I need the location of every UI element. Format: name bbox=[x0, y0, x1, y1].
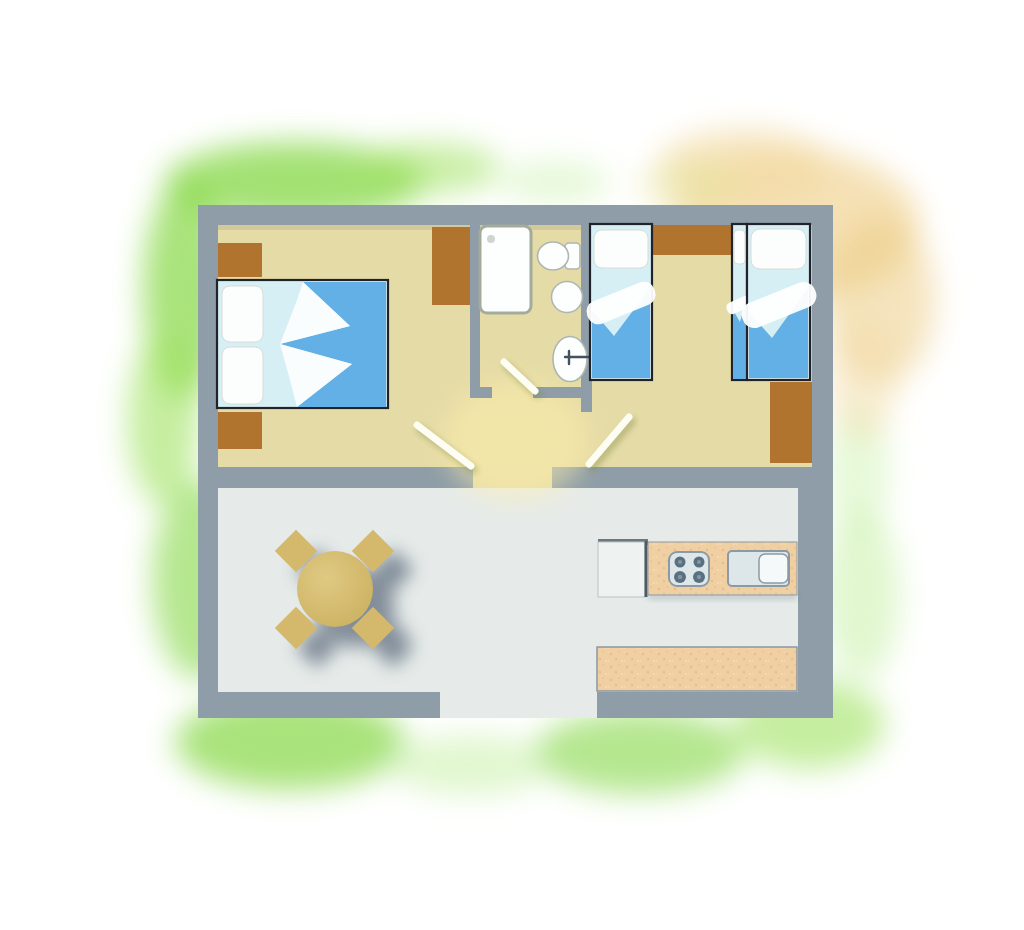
bidet bbox=[552, 282, 583, 313]
toilet bbox=[538, 242, 569, 270]
round-table bbox=[297, 551, 373, 627]
lower-counter bbox=[597, 647, 797, 691]
kitchen-sink bbox=[728, 551, 789, 586]
single-bed-left bbox=[583, 224, 659, 380]
cabinet-between-beds bbox=[652, 225, 733, 255]
pillow bbox=[751, 229, 806, 269]
nightstand-top bbox=[218, 243, 262, 277]
pillow bbox=[222, 286, 263, 342]
sink-basin bbox=[759, 554, 788, 583]
floor-plan-scene bbox=[0, 0, 1024, 930]
pillow bbox=[734, 230, 745, 264]
double-bed bbox=[217, 280, 388, 408]
wardrobe-kids bbox=[770, 382, 812, 463]
pillow bbox=[222, 347, 263, 404]
stove bbox=[669, 552, 709, 586]
wall-foot bbox=[470, 387, 492, 398]
wardrobe-bedroom bbox=[432, 227, 470, 305]
shower-drain-icon bbox=[487, 235, 495, 243]
wall-bathroom-hall bbox=[533, 387, 589, 398]
single-bed-right bbox=[738, 224, 820, 380]
building bbox=[198, 205, 833, 718]
fridge bbox=[598, 542, 645, 597]
floor-entrance-opening bbox=[440, 692, 597, 718]
nightstand-bottom bbox=[218, 412, 262, 449]
pillow bbox=[594, 230, 648, 268]
